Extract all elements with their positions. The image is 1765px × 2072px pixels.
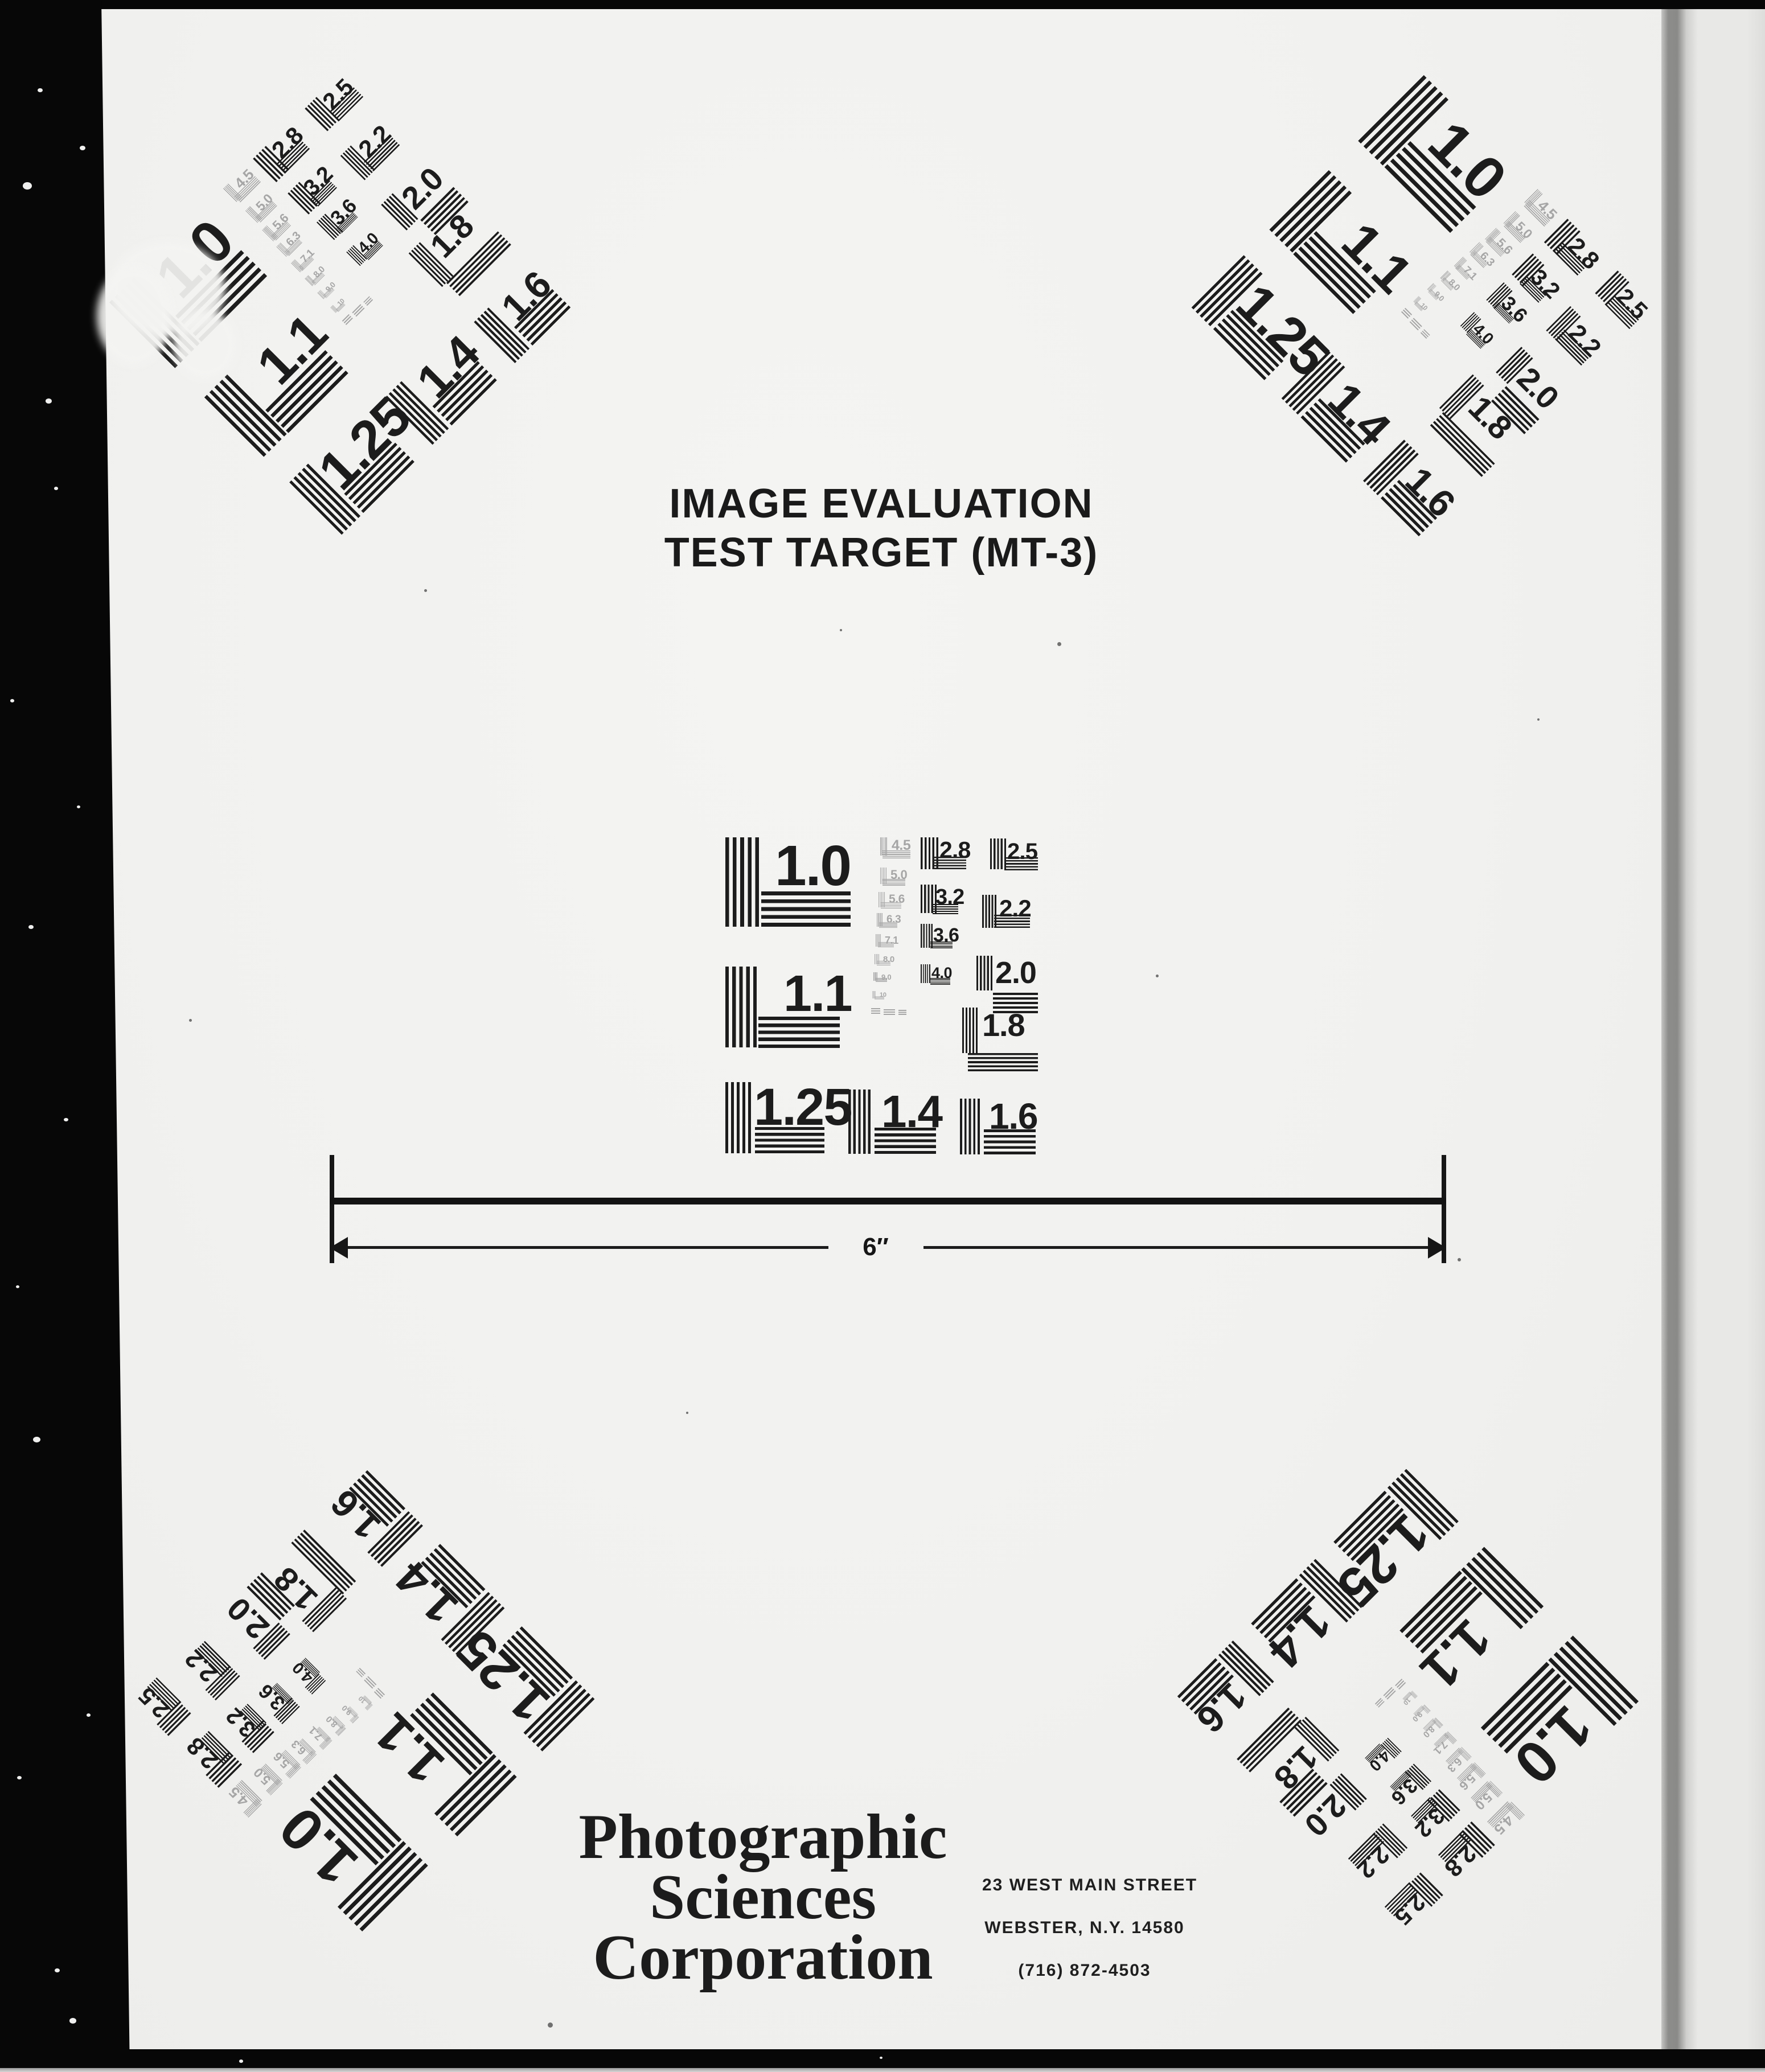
target-label-8.0: 8.0 — [1422, 1724, 1436, 1739]
org-logo-text: Photographic Sciences Corporation — [557, 1807, 969, 1988]
vertical-bars — [725, 1082, 751, 1153]
target-label-2.8: 2.8 — [939, 838, 971, 862]
target-label-3.2: 3.2 — [935, 886, 964, 908]
target-label-5.6: 5.6 — [270, 212, 291, 232]
vertical-bars — [921, 964, 930, 983]
scale-line-thick — [330, 1198, 1446, 1204]
target-label-4.0: 4.0 — [931, 965, 952, 981]
target-label-8.0: 8.0 — [883, 955, 894, 964]
vertical-bars — [725, 967, 757, 1047]
horizontal-bars — [993, 993, 1038, 1013]
target-label-2.0: 2.0 — [995, 957, 1036, 988]
target-label-1.25: 1.25 — [754, 1081, 852, 1133]
target-label-7.1: 7.1 — [1462, 264, 1479, 282]
target-label-2.2: 2.2 — [999, 897, 1031, 920]
address-line-street: 23 WEST MAIN STREET — [982, 1864, 1187, 1906]
address-line-phone: (716) 872-4503 — [982, 1949, 1187, 1992]
target-label-8.0: 8.0 — [312, 265, 327, 279]
scale-arrow-line-right — [923, 1246, 1439, 1249]
target-label-8.0: 8.0 — [325, 1715, 339, 1729]
faint-mark — [1384, 1687, 1396, 1700]
faint-mark — [898, 1010, 906, 1015]
target-label-1.1: 1.1 — [783, 968, 852, 1019]
film-border-bottom-edge — [0, 2068, 1765, 2072]
resolution-pattern-center: 1.01.11.251.41.61.82.02.22.52.83.23.64.0… — [725, 837, 1039, 1156]
resolution-pattern-bottom-right: 1.01.11.251.41.61.82.02.22.52.83.23.64.0… — [1174, 1467, 1639, 1931]
target-label-7.1: 7.1 — [1432, 1739, 1450, 1757]
vertical-bars — [848, 1090, 871, 1154]
target-label-9.0: 9.0 — [1411, 1711, 1424, 1723]
org-line-corporation: Corporation — [557, 1927, 969, 1988]
vertical-bars — [962, 1008, 978, 1053]
scale-arrowhead-right — [1428, 1237, 1446, 1259]
film-border-left — [0, 0, 101, 2072]
adjacent-page-edge — [1661, 0, 1765, 2072]
faint-mark — [1410, 318, 1422, 330]
vertical-bars — [976, 956, 992, 990]
faint-mark — [356, 1668, 366, 1678]
page: IMAGE EVALUATION TEST TARGET (MT-3) 6″ P… — [101, 9, 1661, 2049]
resolution-pattern-top-right: 1.01.11.251.41.61.82.02.22.52.83.23.64.0… — [1189, 75, 1654, 540]
target-label-7.1: 7.1 — [307, 1725, 325, 1742]
film-border-bottom — [0, 2049, 1765, 2068]
scale-arrowhead-left — [330, 1237, 348, 1259]
target-label-9.0: 9.0 — [340, 1704, 353, 1717]
target-label-9.0: 9.0 — [881, 973, 891, 981]
faint-mark — [1421, 329, 1430, 339]
target-label-6.3: 6.3 — [284, 230, 303, 249]
scale-length-label: 6″ — [828, 1233, 923, 1261]
target-label-1.8: 1.8 — [982, 1009, 1025, 1041]
title-line-2: TEST TARGET (MT-3) — [101, 528, 1661, 577]
target-label-1.0: 1.0 — [775, 837, 851, 894]
target-label-9.0: 9.0 — [324, 281, 336, 293]
org-line-sciences: Sciences — [557, 1867, 969, 1927]
target-label-1.6: 1.6 — [989, 1098, 1037, 1134]
faint-mark — [884, 1009, 895, 1015]
resolution-pattern-top-left: 1.01.11.251.41.61.82.02.22.52.83.23.64.0… — [109, 72, 574, 537]
target-label-1.4: 1.4 — [881, 1089, 942, 1134]
vertical-bars — [990, 838, 1006, 869]
target-label-4.5: 4.5 — [892, 838, 910, 853]
target-label-3.6: 3.6 — [933, 926, 959, 945]
target-label-5.0: 5.0 — [890, 869, 907, 881]
target-label-2.5: 2.5 — [1007, 840, 1037, 863]
vertical-bars — [725, 837, 759, 927]
faint-mark — [1401, 308, 1412, 319]
target-label-6.3: 6.3 — [1478, 250, 1497, 269]
faint-mark — [1375, 1698, 1385, 1708]
horizontal-bars — [968, 1053, 1038, 1071]
vertical-bars — [960, 1099, 980, 1154]
faint-mark — [1395, 1679, 1406, 1689]
address-line-city: WEBSTER, N.Y. 14580 — [982, 1906, 1187, 1949]
faint-mark — [374, 1688, 385, 1699]
target-label-9.0: 9.0 — [1433, 290, 1446, 302]
faint-mark — [363, 296, 373, 306]
target-label-6.3: 6.3 — [290, 1738, 309, 1757]
scale-arrow-line-left — [332, 1246, 828, 1249]
faint-mark — [342, 314, 353, 325]
scan-background: { "header": { "title_line1": "IMAGE EVAL… — [0, 0, 1765, 2072]
faint-mark — [352, 304, 364, 316]
target-label-7.1: 7.1 — [885, 935, 898, 945]
org-line-photographic: Photographic — [557, 1807, 969, 1867]
faint-mark — [364, 1676, 376, 1689]
target-label-6.3: 6.3 — [886, 914, 901, 925]
target-label-10: 10 — [880, 992, 886, 998]
address-block: 23 WEST MAIN STREET WEBSTER, N.Y. 14580 … — [982, 1864, 1187, 1992]
target-label-10: 10 — [336, 298, 346, 307]
target-label-5.6: 5.6 — [889, 893, 905, 905]
target-label-7.1: 7.1 — [298, 247, 316, 265]
faint-mark — [871, 1008, 880, 1014]
target-label-8.0: 8.0 — [1447, 278, 1462, 293]
film-border-top — [0, 0, 1765, 9]
resolution-pattern-bottom-left: 1.01.11.251.41.61.82.02.22.52.83.23.64.0… — [132, 1467, 597, 1931]
